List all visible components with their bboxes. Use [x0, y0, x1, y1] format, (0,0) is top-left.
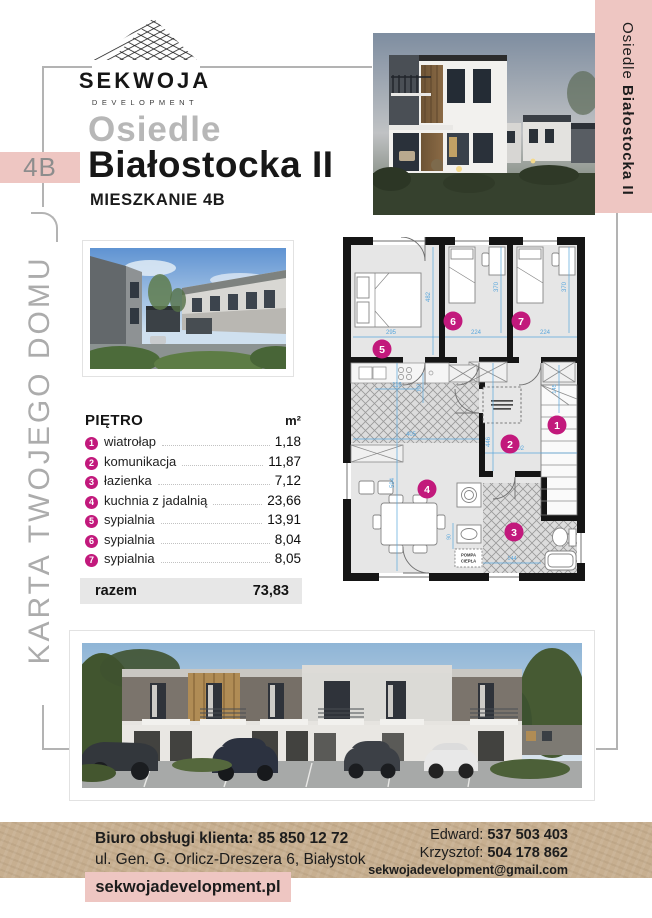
room-label: wiatrołap [104, 434, 156, 449]
unit-badge: 4B [0, 152, 80, 183]
plan-room-badge: 4 [424, 484, 430, 496]
dim-label: 224 [540, 330, 551, 336]
room-number-badge: 2 [85, 457, 98, 470]
divider [200, 66, 372, 68]
footer-office-block: Biuro obsługi klienta: 85 850 12 72 ul. … [95, 830, 365, 869]
room-area: 11,87 [268, 454, 301, 469]
plan-room-badge: 1 [554, 420, 560, 432]
floor-plan: POMPA CIEPŁA [343, 237, 585, 581]
company-logo: SEKWOJA DEVELOPMENT [73, 15, 217, 107]
room-label: sypialnia [104, 532, 155, 547]
banner-estate-name: Białostocka II [619, 85, 636, 196]
dotted-leader [182, 465, 263, 466]
estate-photo [82, 240, 294, 377]
unit-label: MIESZKANIE 4B [90, 191, 225, 210]
table-row: 3 łazienka 7,12 [85, 473, 301, 493]
room-number-badge: 3 [85, 476, 98, 489]
plan-room-badge: 6 [450, 316, 456, 328]
brand-name: SEKWOJA [73, 68, 217, 94]
room-number-badge: 6 [85, 535, 98, 548]
plan-room-badge: 3 [511, 527, 517, 539]
dim-label: 116 [392, 383, 402, 389]
heat-pump-label: CIEPŁA [461, 559, 476, 564]
estate-name: Białostocka II [88, 144, 334, 186]
contact-name: Krzysztof: [420, 845, 488, 861]
house-photo [373, 33, 595, 215]
room-area: 1,18 [275, 434, 301, 449]
contact-phone[interactable]: 504 178 862 [487, 845, 568, 861]
townhouses-photo [69, 630, 595, 801]
contact-email[interactable]: sekwojadevelopment@gmail.com [368, 863, 568, 877]
plan-room-badge: 5 [379, 344, 385, 356]
plan-room-badge: 2 [507, 439, 513, 451]
room-area: 23,66 [267, 493, 301, 508]
table-header-unit: m² [285, 413, 301, 428]
table-row: 2 komunikacja 11,87 [85, 454, 301, 474]
room-label: sypialnia [104, 551, 155, 566]
contact-line[interactable]: Krzysztof: 504 178 862 [368, 845, 568, 861]
contact-name: Edward: [430, 827, 487, 843]
room-number-badge: 1 [85, 437, 98, 450]
banner-estate-label: Osiedle [619, 22, 636, 85]
dim-label: 90 [447, 534, 453, 540]
dotted-leader [213, 504, 262, 505]
plan-room-badge: 7 [518, 316, 524, 328]
table-row: 5 sypialnia 13,91 [85, 512, 301, 532]
total-value: 73,83 [253, 583, 289, 599]
dim-label: 224 [471, 330, 482, 336]
contact-line[interactable]: Edward: 537 503 403 [368, 827, 568, 843]
room-label: kuchnia z jadalnią [104, 493, 207, 508]
dim-label: 370 [494, 281, 500, 292]
divider [42, 66, 44, 207]
dim-label: 295 [386, 330, 397, 336]
side-banner-left-text: KARTA TWOJEGO DOMU [19, 215, 61, 705]
dim-label: 482 [426, 291, 432, 302]
table-row: 7 sypialnia 8,05 [85, 551, 301, 571]
contact-phone[interactable]: 537 503 403 [487, 827, 568, 843]
office-phone-line[interactable]: Biuro obsługi klienta: 85 850 12 72 [95, 830, 365, 848]
dotted-leader [161, 543, 270, 544]
area-table: PIĘTRO m² 1 wiatrołap 1,18 2 komunikacja… [85, 412, 301, 604]
side-banner-right: Osiedle Białostocka II [595, 0, 652, 213]
table-total-row: razem 73,83 [80, 578, 302, 604]
table-header-floor: PIĘTRO [85, 412, 143, 429]
dotted-leader [162, 445, 270, 446]
room-number-badge: 5 [85, 515, 98, 528]
dotted-leader [158, 484, 270, 485]
dim-label: 594 [390, 477, 396, 488]
table-row: 4 kuchnia z jadalnią 23,66 [85, 493, 301, 513]
dotted-leader [161, 523, 263, 524]
table-row: 6 sypialnia 8,04 [85, 532, 301, 552]
dim-label: 405 [406, 432, 417, 438]
decorative-bracket [596, 213, 618, 750]
total-label: razem [95, 583, 137, 599]
dim-label: 100 [417, 384, 423, 393]
dotted-leader [161, 562, 270, 563]
dim-label: 370 [562, 281, 568, 292]
table-row: 1 wiatrołap 1,18 [85, 434, 301, 454]
room-label: sypialnia [104, 512, 155, 527]
property-card-page: SEKWOJA DEVELOPMENT 4B Osiedle Białostoc… [0, 0, 652, 918]
room-area: 7,12 [275, 473, 301, 488]
dim-label: 144 [507, 556, 516, 562]
side-banner-right-text: Osiedle Białostocka II [619, 22, 636, 196]
dim-label: 145 [552, 384, 558, 393]
room-area: 13,91 [267, 512, 301, 527]
room-number-badge: 4 [85, 496, 98, 509]
logo-hatch-icon [89, 15, 201, 61]
room-label: łazienka [104, 473, 152, 488]
room-area: 8,05 [275, 551, 301, 566]
room-label: komunikacja [104, 454, 176, 469]
heat-pump-label: POMPA [461, 553, 476, 558]
decorative-bracket [42, 705, 72, 750]
dim-label: 446 [486, 436, 492, 447]
office-address-line: ul. Gen. G. Orlicz-Dreszera 6, Białystok [95, 851, 365, 869]
room-area: 8,04 [275, 532, 301, 547]
website-badge[interactable]: sekwojadevelopment.pl [85, 872, 291, 902]
footer-contacts-block: Edward: 537 503 403 Krzysztof: 504 178 8… [368, 827, 568, 877]
brand-subtitle: DEVELOPMENT [73, 98, 217, 107]
room-number-badge: 7 [85, 554, 98, 567]
